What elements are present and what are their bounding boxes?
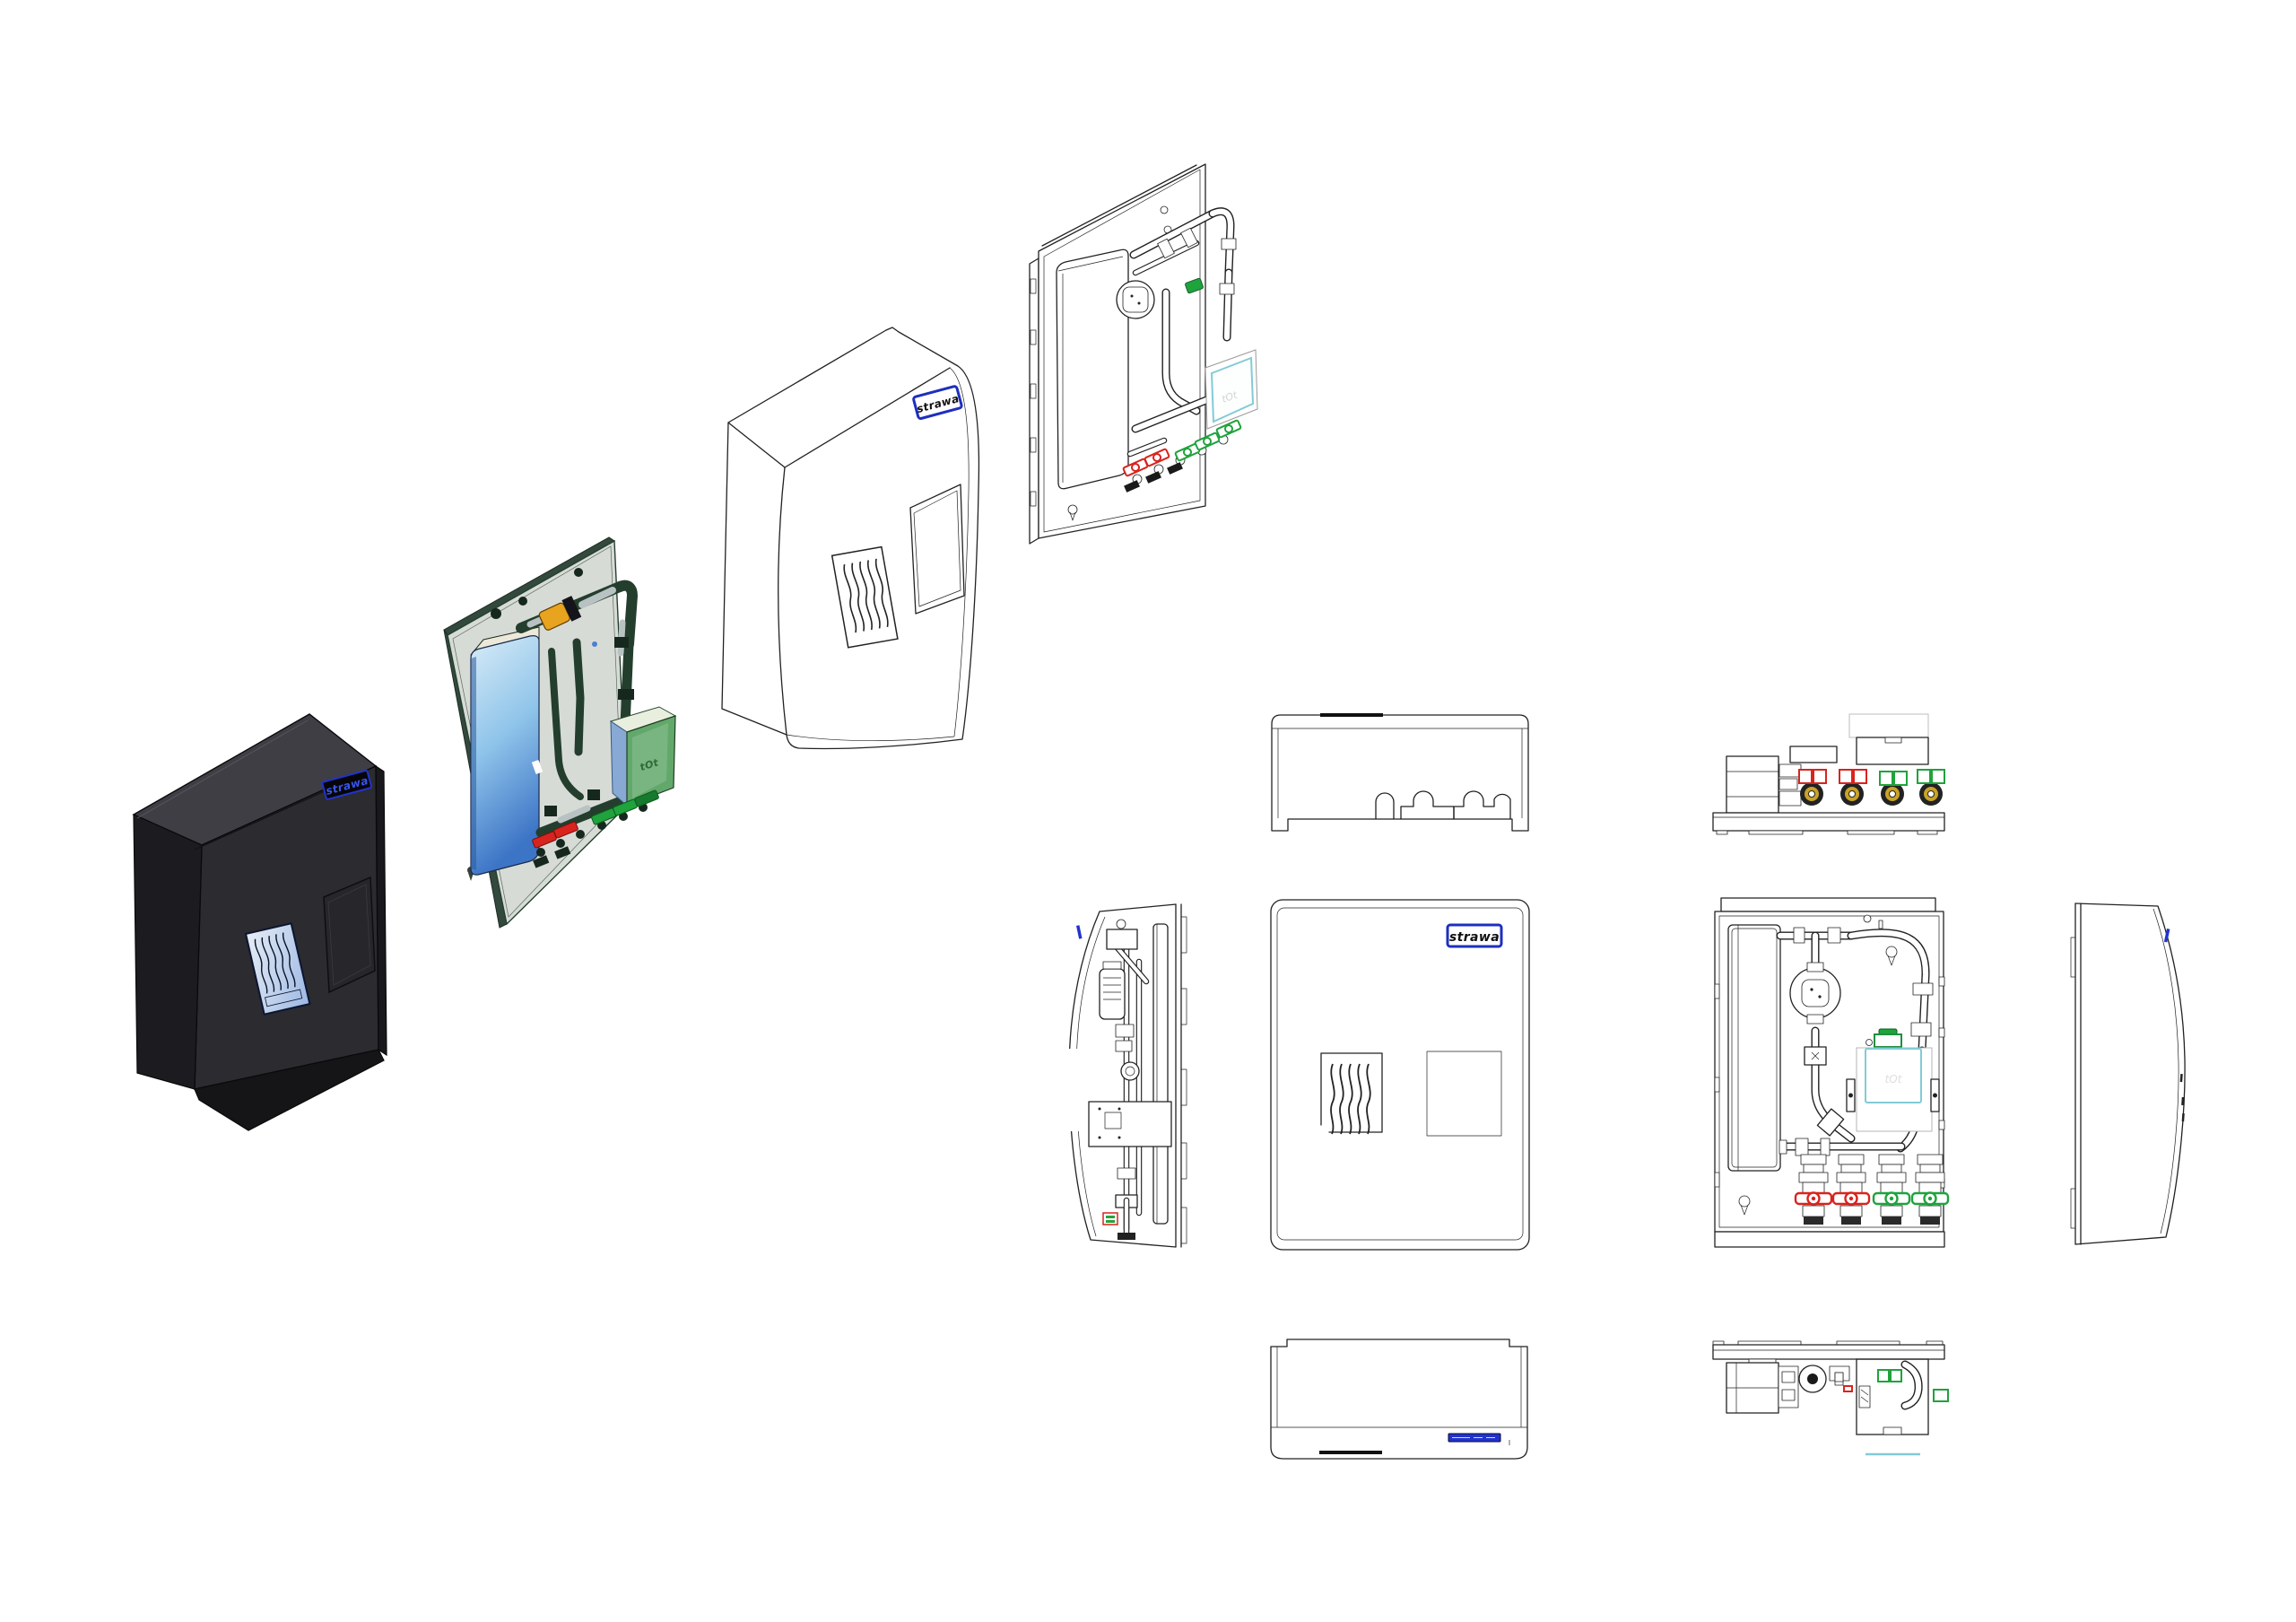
iso-front-cover: strawa (719, 326, 987, 758)
ortho-enclosure-side (1064, 899, 1196, 1252)
window-cutout (1427, 1051, 1501, 1136)
heat-exchanger (1726, 1363, 1779, 1413)
controller-box: tOt (1847, 1048, 1939, 1131)
red-mark (1844, 1386, 1852, 1391)
internal-assembly-side (1089, 920, 1171, 1240)
elbow-pipe (1905, 1365, 1918, 1406)
pump (1117, 281, 1154, 318)
heat-exchanger (1728, 925, 1780, 1171)
valve-handle-green (1880, 770, 1944, 785)
connector-stack (1779, 1366, 1798, 1408)
controller-hidden-outline (1849, 714, 1928, 737)
window-cutout (324, 877, 375, 992)
bracket (1790, 746, 1837, 763)
cad-drawing-sheet: strawa (0, 0, 2296, 1622)
iso-enclosure-black: strawa (132, 709, 396, 1138)
heat-exchanger (1057, 249, 1128, 489)
ortho-enclosure-top (1270, 713, 1532, 839)
controller-box: tOt (611, 707, 675, 806)
pipe-cutouts (1376, 791, 1510, 819)
heat-exchanger (1726, 756, 1779, 813)
iso-assembled-unit: tOt (1030, 158, 1272, 545)
svg-text:strawa: strawa (1449, 930, 1500, 945)
controller-box: tOt (1205, 350, 1257, 429)
label-strip (1448, 1434, 1500, 1442)
label-strip (1320, 713, 1383, 717)
strawa-logo: strawa (913, 386, 962, 419)
label-edge-mark (1319, 1451, 1382, 1454)
pump (1799, 1365, 1826, 1392)
valve-red-green (1103, 1213, 1118, 1225)
ortho-assembly-bottom (1711, 1339, 1950, 1465)
svg-text:tOt: tOt (1885, 1073, 1903, 1086)
window-edge-marks (2180, 1074, 2185, 1121)
ortho-enclosure-front: strawa (1270, 899, 1532, 1252)
enclosure-profile (2071, 903, 2185, 1244)
base-plate (1713, 813, 1944, 834)
ortho-enclosure-bottom (1269, 1338, 1531, 1463)
heat-exchanger (471, 627, 539, 875)
valve-handle-red (1799, 770, 1866, 783)
ortho-assembly-front: tOt (1715, 898, 1946, 1251)
ortho-assembly-side (2071, 898, 2195, 1251)
label-overlay (1064, 1049, 1088, 1131)
iso-internal-assembly: tOt (444, 536, 684, 931)
controller-box (1857, 737, 1928, 764)
wave-emblem-icon (832, 547, 898, 648)
valve-unions (1800, 782, 1943, 806)
strawa-logo: strawa (1448, 925, 1501, 946)
wave-emblem-icon (1321, 1053, 1382, 1134)
logo-edge-mark (2164, 929, 2170, 942)
ortho-assembly-top (1713, 714, 1950, 840)
connector-stack (1779, 764, 1801, 806)
window-cutout (910, 484, 964, 614)
logo-edge-mark (1076, 925, 1083, 938)
